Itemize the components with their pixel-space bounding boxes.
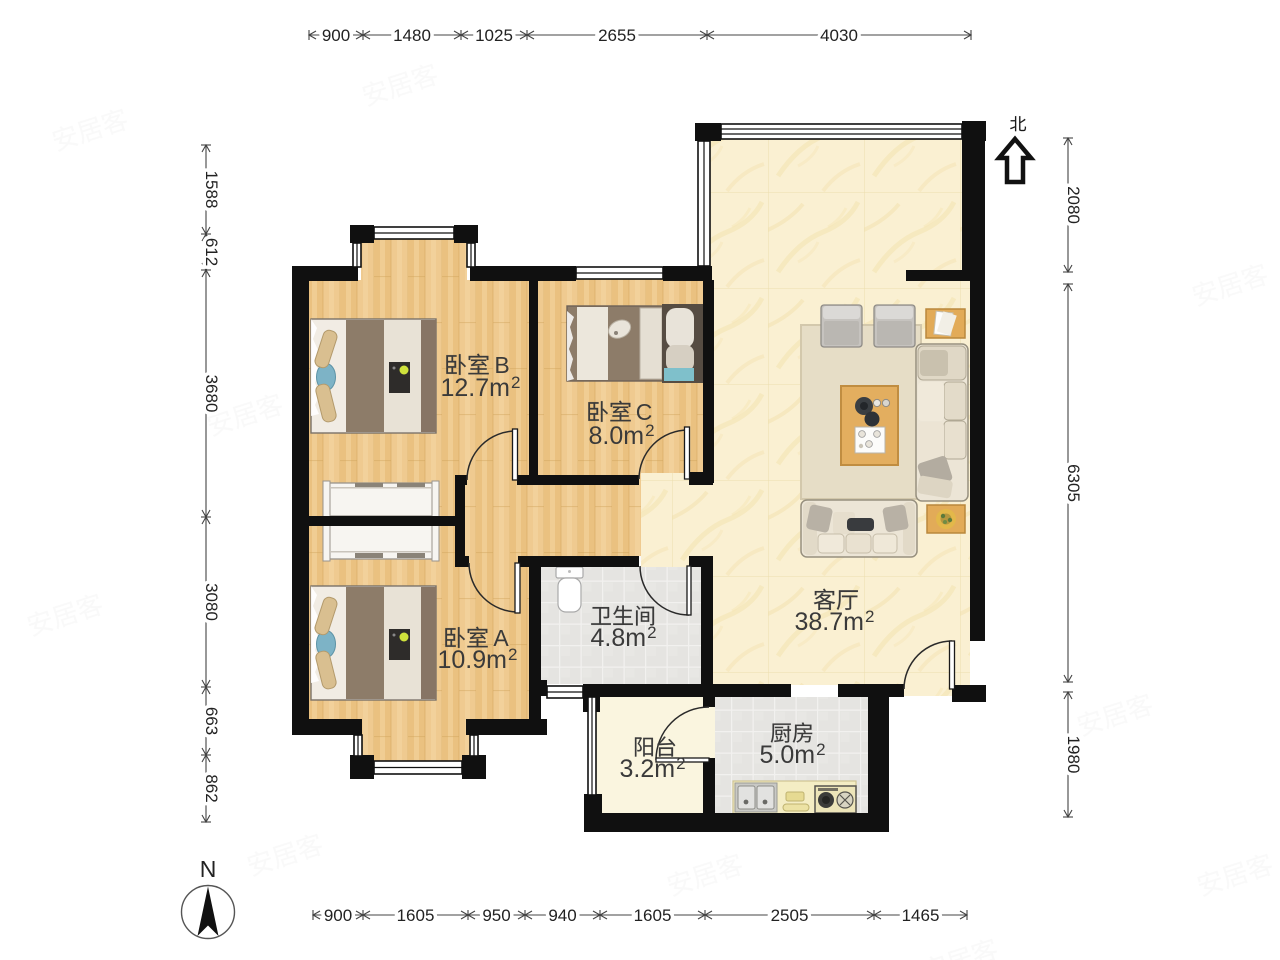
- svg-text:1980: 1980: [1064, 736, 1083, 774]
- svg-text:10.9m: 10.9m: [438, 646, 507, 674]
- svg-text:1605: 1605: [634, 906, 672, 925]
- svg-text:2080: 2080: [1064, 186, 1083, 224]
- svg-text:8.0m: 8.0m: [589, 422, 645, 450]
- svg-text:1480: 1480: [393, 26, 431, 45]
- svg-text:1025: 1025: [475, 26, 513, 45]
- svg-text:2: 2: [645, 421, 654, 440]
- svg-text:940: 940: [548, 906, 576, 925]
- svg-text:5.0m: 5.0m: [760, 741, 816, 769]
- svg-text:2505: 2505: [771, 906, 809, 925]
- svg-text:3.2m: 3.2m: [620, 755, 676, 783]
- svg-text:4030: 4030: [820, 26, 858, 45]
- svg-text:900: 900: [322, 26, 350, 45]
- svg-text:6305: 6305: [1064, 464, 1083, 502]
- svg-text:2: 2: [647, 623, 656, 642]
- svg-text:862: 862: [202, 774, 221, 802]
- svg-text:2: 2: [816, 740, 825, 759]
- svg-text:3680: 3680: [202, 375, 221, 413]
- svg-text:950: 950: [482, 906, 510, 925]
- svg-text:12.7m: 12.7m: [441, 374, 510, 402]
- svg-text:900: 900: [324, 906, 352, 925]
- svg-text:2: 2: [508, 645, 517, 664]
- svg-text:1588: 1588: [202, 171, 221, 209]
- svg-text:2: 2: [676, 754, 685, 773]
- svg-text:2: 2: [511, 373, 520, 392]
- svg-text:N: N: [200, 856, 217, 882]
- svg-text:38.7m: 38.7m: [795, 608, 864, 636]
- svg-text:1605: 1605: [397, 906, 435, 925]
- svg-text:612: 612: [202, 238, 221, 266]
- svg-text:663: 663: [202, 707, 221, 735]
- svg-text:3080: 3080: [202, 583, 221, 621]
- svg-text:2655: 2655: [598, 26, 636, 45]
- svg-text:4.8m: 4.8m: [591, 624, 647, 652]
- svg-text:2: 2: [865, 607, 874, 626]
- svg-text:1465: 1465: [902, 906, 940, 925]
